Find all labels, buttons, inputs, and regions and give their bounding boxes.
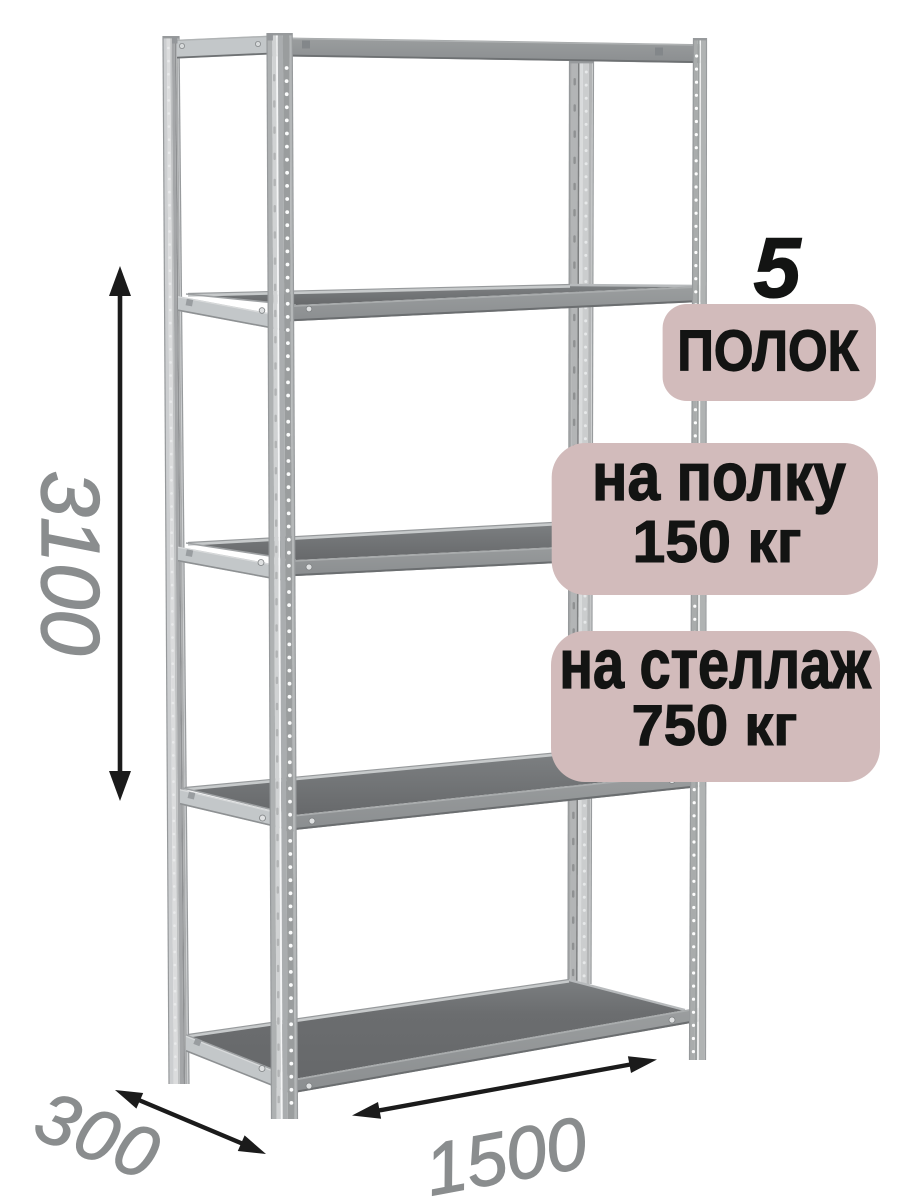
svg-text:750 кг: 750 кг <box>632 694 798 758</box>
svg-text:ПОЛОК: ПОЛОК <box>677 320 859 383</box>
svg-text:150 кг: 150 кг <box>633 509 802 575</box>
svg-text:3100: 3100 <box>24 471 117 656</box>
svg-text:на полку: на полку <box>592 440 846 515</box>
svg-text:5: 5 <box>753 221 802 316</box>
svg-text:на стеллаж: на стеллаж <box>559 626 872 703</box>
